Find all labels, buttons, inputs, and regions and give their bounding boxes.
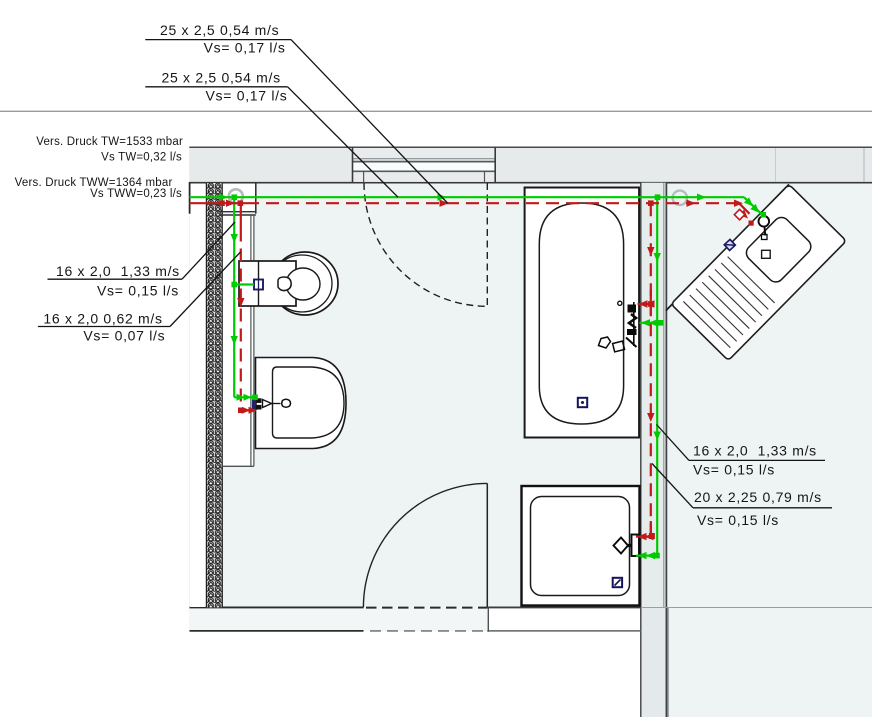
svg-text:16 x 2,0 1,33 m/s: 16 x 2,0 1,33 m/s <box>56 263 180 279</box>
svg-text:Vs TWW=0,23 l/s: Vs TWW=0,23 l/s <box>90 188 182 200</box>
svg-text:Vs= 0,15 l/s: Vs= 0,15 l/s <box>693 462 775 478</box>
svg-text:Vs= 0,07 l/s: Vs= 0,07 l/s <box>83 328 165 344</box>
svg-text:Vs= 0,15 l/s: Vs= 0,15 l/s <box>97 282 179 298</box>
svg-text:Vs= 0,17 l/s: Vs= 0,17 l/s <box>204 40 286 56</box>
svg-text:25 x 2,5 0,54 m/s: 25 x 2,5 0,54 m/s <box>160 22 279 38</box>
svg-text:16 x 2,0 0,62 m/s: 16 x 2,0 0,62 m/s <box>43 310 162 326</box>
svg-text:Vs= 0,15 l/s: Vs= 0,15 l/s <box>697 512 779 528</box>
svg-text:Vs TW=0,32 l/s: Vs TW=0,32 l/s <box>101 152 182 164</box>
svg-text:20 x 2,25 0,79 m/s: 20 x 2,25 0,79 m/s <box>694 489 822 505</box>
svg-text:Vers. Druck TW=1533 mbar: Vers. Druck TW=1533 mbar <box>36 136 183 148</box>
svg-text:25 x 2,5 0,54 m/s: 25 x 2,5 0,54 m/s <box>162 70 281 86</box>
svg-text:Vs= 0,17 l/s: Vs= 0,17 l/s <box>206 88 288 104</box>
svg-text:16 x 2,0 1,33 m/s: 16 x 2,0 1,33 m/s <box>693 442 817 458</box>
